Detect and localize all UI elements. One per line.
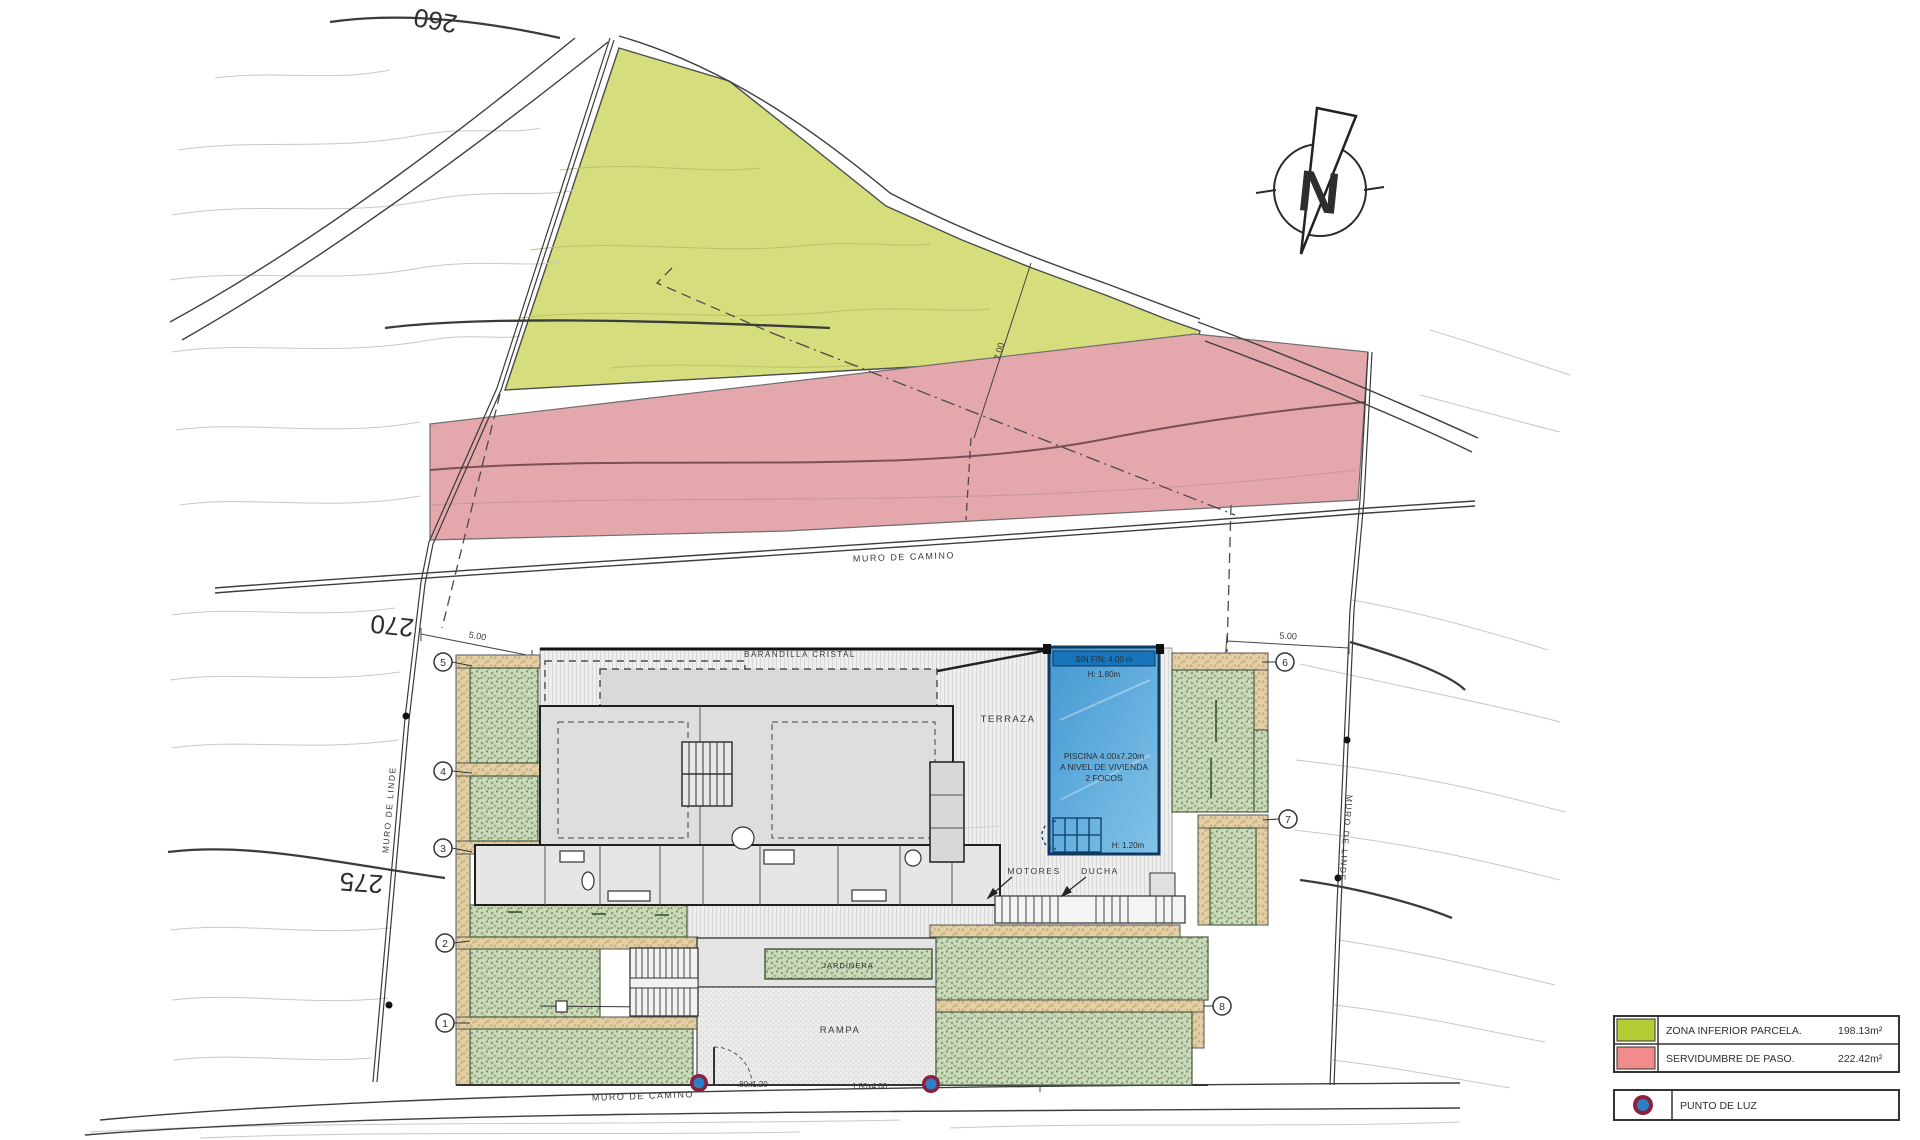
muro-linde-left-label: MURO DE LINDE xyxy=(380,766,398,854)
villa-plan: JARDINERA RAMPA xyxy=(456,644,1268,1093)
marker-1: 1 xyxy=(442,1018,448,1030)
light-point-1 xyxy=(690,1074,708,1092)
marker-6: 6 xyxy=(1282,657,1288,669)
contour-label-270: 270 xyxy=(369,609,415,643)
north-compass: N xyxy=(1256,108,1384,254)
dim-door-label: .80x1.20 xyxy=(737,1080,768,1089)
marker-4: 4 xyxy=(440,766,446,778)
pool: SIN FIN: 4.00 m H: 1.80m PISCINA 4.00x7.… xyxy=(1042,644,1164,854)
marker-8: 8 xyxy=(1219,1001,1225,1013)
barandilla-label: BARANDILLA CRISTAL xyxy=(744,650,856,659)
legend-punto-label: PUNTO DE LUZ xyxy=(1680,1100,1757,1112)
light-point-2 xyxy=(922,1075,940,1093)
pool-h-top-label: H: 1.80m xyxy=(1088,670,1121,679)
motores-label: MOTORES xyxy=(1007,866,1060,876)
ducha-label: DUCHA xyxy=(1081,866,1119,876)
pool-line3: 2 FOCOS xyxy=(1085,773,1123,783)
contour-label-275: 275 xyxy=(339,867,384,900)
pool-line2: A NIVEL DE VIVIENDA xyxy=(1060,762,1148,772)
interior-stairs xyxy=(682,742,732,806)
zona-inferior-parcela-area xyxy=(505,48,1200,390)
legend-zona-swatch xyxy=(1617,1019,1655,1041)
compass-letter: N xyxy=(1295,158,1343,227)
marker-3: 3 xyxy=(440,843,446,855)
dim-gate-label: 1.80x4.00 xyxy=(852,1082,888,1091)
muro-camino-top-label: MURO DE CAMINO xyxy=(853,550,955,564)
pool-line1: PISCINA 4.00x7.20m xyxy=(1064,751,1144,761)
marker-7: 7 xyxy=(1285,814,1291,826)
legend-zona-value: 198.13m² xyxy=(1838,1025,1883,1037)
rampa-label: RAMPA xyxy=(820,1025,861,1036)
exterior-stairs xyxy=(630,948,698,1016)
marker-5: 5 xyxy=(440,657,446,669)
dim-5-right: 5.00 xyxy=(1279,631,1297,642)
legend: ZONA INFERIOR PARCELA. 198.13m² SERVIDUM… xyxy=(1614,1016,1899,1120)
contour-label-260: 260 xyxy=(411,2,459,39)
dim-5-left: 5.00 xyxy=(468,630,487,643)
legend-servidumbre-label: SERVIDUMBRE DE PASO. xyxy=(1666,1053,1795,1065)
jardinera-label: JARDINERA xyxy=(822,961,874,970)
muro-camino-bottom-label: MURO DE CAMINO xyxy=(592,1089,694,1103)
legend-servidumbre-swatch xyxy=(1617,1047,1655,1069)
pool-h-bottom-label: H: 1.20m xyxy=(1112,841,1145,850)
legend-punto-icon xyxy=(1633,1095,1653,1115)
legend-zona-label: ZONA INFERIOR PARCELA. xyxy=(1666,1025,1802,1037)
site-plan-canvas: 5.00 5.00 7.00 7.48 260 270 275 MURO DE … xyxy=(0,0,1920,1140)
terraza-label: TERRAZA xyxy=(981,714,1036,725)
pool-sinfin-label: SIN FIN: 4.00 m xyxy=(1075,655,1133,664)
legend-servidumbre-value: 222.42m² xyxy=(1838,1053,1883,1065)
marker-2: 2 xyxy=(442,938,448,950)
muro-camino-bottom-line xyxy=(85,1083,1460,1135)
